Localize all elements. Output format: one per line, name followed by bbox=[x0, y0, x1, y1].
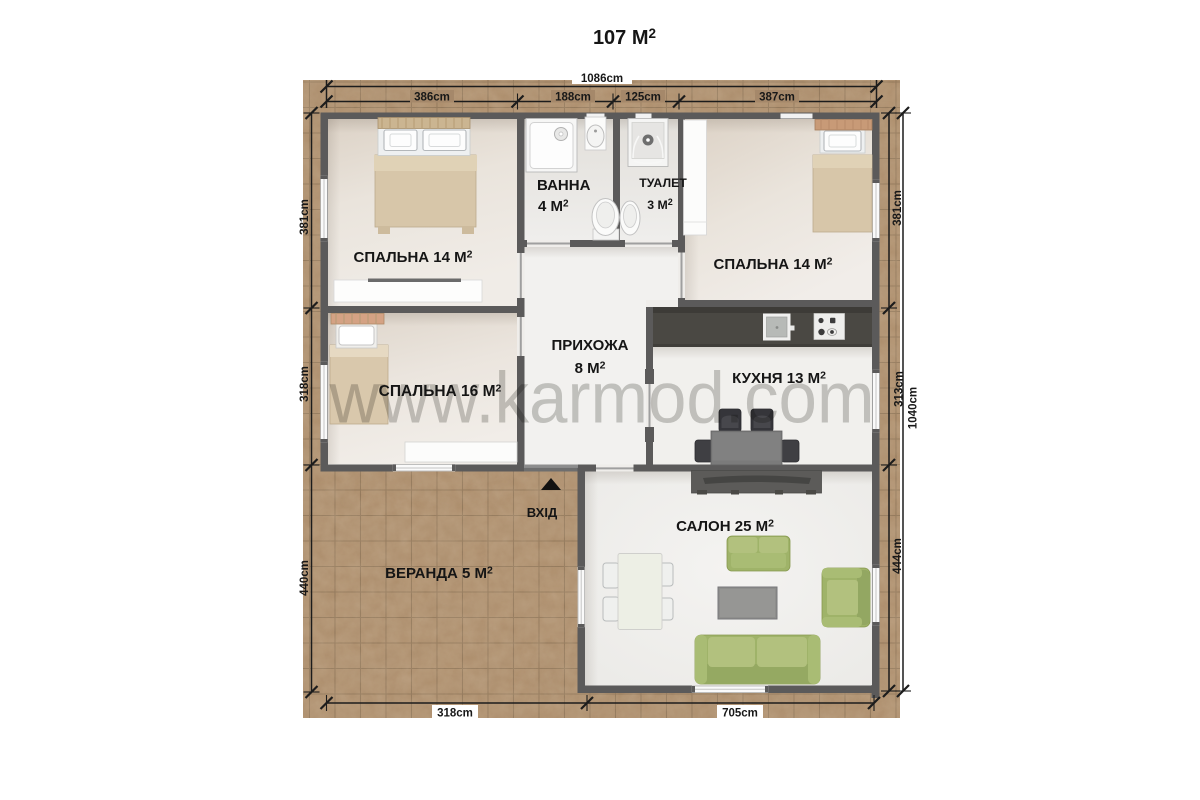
svg-text:ПРИХОЖА: ПРИХОЖА bbox=[551, 337, 628, 354]
svg-text:СПАЛЬНА 14 М2: СПАЛЬНА 14 М2 bbox=[354, 249, 473, 267]
svg-text:1086cm: 1086cm bbox=[581, 73, 623, 85]
svg-text:318cm: 318cm bbox=[299, 366, 311, 402]
svg-text:387cm: 387cm bbox=[759, 92, 795, 104]
svg-text:ВЕРАНДА 5 М2: ВЕРАНДА 5 М2 bbox=[385, 565, 493, 583]
svg-text:СПАЛЬНА 14 М2: СПАЛЬНА 14 М2 bbox=[714, 256, 833, 274]
svg-text:386cm: 386cm bbox=[414, 92, 450, 104]
svg-text:313cm: 313cm bbox=[894, 371, 906, 407]
svg-text:381cm: 381cm bbox=[892, 190, 904, 226]
svg-text:444cm: 444cm bbox=[892, 538, 904, 574]
svg-text:318cm: 318cm bbox=[437, 708, 473, 720]
svg-text:ВХІД: ВХІД bbox=[527, 505, 558, 520]
svg-text:ВАННА: ВАННА bbox=[537, 177, 591, 194]
svg-text:КУХНЯ 13 М2: КУХНЯ 13 М2 bbox=[732, 370, 826, 388]
svg-text:705cm: 705cm bbox=[722, 708, 758, 720]
svg-text:107 М2: 107 М2 bbox=[593, 26, 656, 49]
svg-text:САЛОН 25 М2: САЛОН 25 М2 bbox=[676, 518, 774, 536]
svg-text:188cm: 188cm bbox=[555, 92, 591, 104]
svg-text:ТУАЛЕТ: ТУАЛЕТ bbox=[639, 176, 687, 190]
svg-text:1040cm: 1040cm bbox=[908, 387, 920, 429]
svg-text:125cm: 125cm bbox=[625, 92, 661, 104]
svg-text:440cm: 440cm bbox=[299, 560, 311, 596]
svg-text:СПАЛЬНА 16 М2: СПАЛЬНА 16 М2 bbox=[379, 383, 502, 401]
svg-text:381cm: 381cm bbox=[299, 199, 311, 235]
